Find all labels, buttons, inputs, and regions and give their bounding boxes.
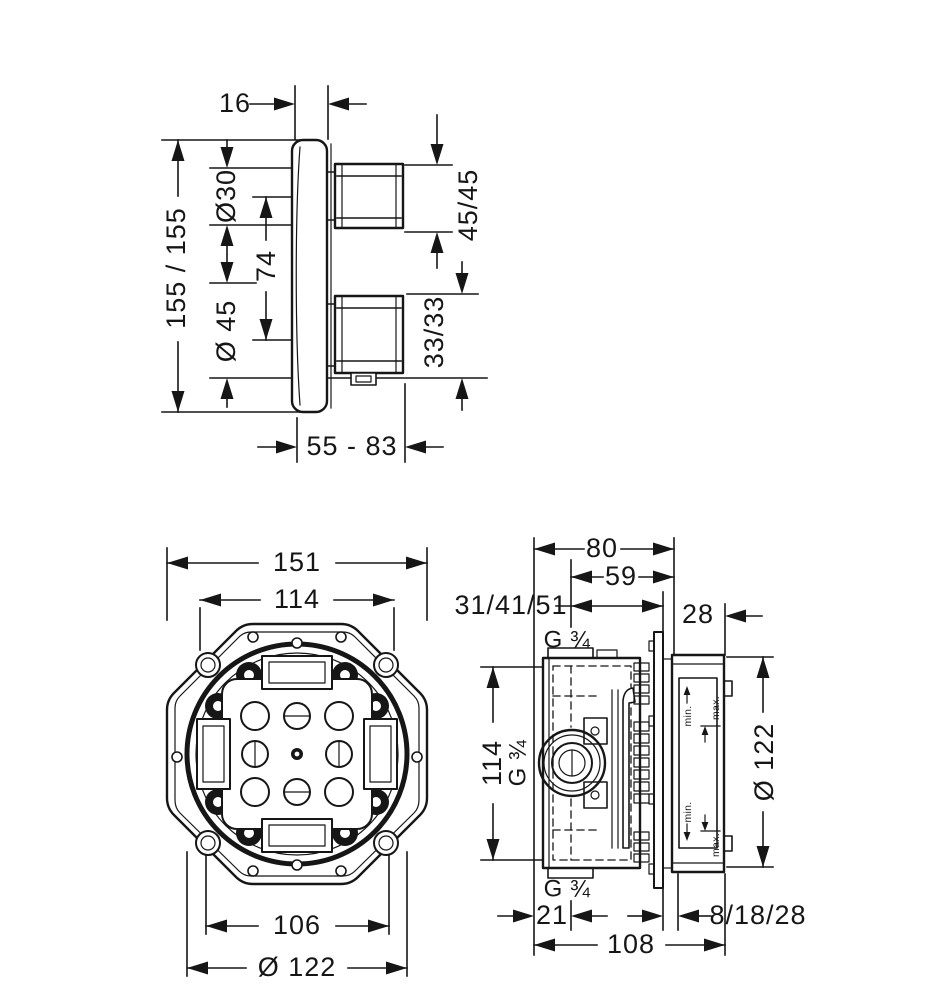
dim-offset-21: 21 [536,900,568,930]
dim-dia-45: Ø 45 [211,300,241,363]
dim-spacing-74: 74 [251,250,281,282]
handle-bottom-tab [351,373,376,385]
dim-handle-33: 33/33 [419,296,449,369]
dim-depth-80: 80 [586,533,618,563]
thread-label-top: G ¾ [544,627,591,654]
shutoff-handle [327,296,403,385]
escutcheon-plate [292,140,331,412]
shield-plate [654,632,663,888]
dim-overall-height: 155 / 155 [161,207,191,329]
basic-body [539,632,663,888]
technical-drawing-page: 16 155 / 155 Ø30 74 Ø 45 45/45 33/33 55 … [0,0,947,1000]
dim-dia-122-side: Ø 122 [749,723,779,802]
dim-width-108: 108 [607,929,655,959]
technical-drawing-canvas: 16 155 / 155 Ø30 74 Ø 45 45/45 33/33 55 … [0,0,947,1000]
ibox-front-view: 151 114 106 Ø 122 [167,547,427,982]
dim-depth-range: 55 - 83 [306,431,397,461]
dim-width-151: 151 [273,547,321,577]
min-label-top: min. [682,705,694,726]
dim-width-106: 106 [273,910,321,940]
min-label-bottom: min. [682,801,694,822]
thermostat-handle [327,164,403,228]
dim-height-114: 114 [477,740,507,786]
ibox-side-view: 80 59 31/41/51 28 G ¾ 114 G ¾ Ø 122 min.… [454,533,806,959]
dim-width-114: 114 [274,584,320,614]
dim-depth-28: 28 [682,599,714,629]
dim-wall-depths: 31/41/51 [454,590,567,620]
max-label-bottom: max. [710,833,722,857]
max-label-top: max. [710,696,722,720]
dim-dia-122-front: Ø 122 [258,952,337,982]
thread-label-mid: G ¾ [505,739,532,786]
dim-plaster-range: 8/18/28 [709,900,806,930]
dim-depth-59: 59 [605,561,637,591]
mounting-flange [167,624,427,884]
dim-plate-thickness: 16 [219,88,251,118]
dim-handle-45: 45/45 [453,169,483,242]
trim-side-view: 16 155 / 155 Ø30 74 Ø 45 45/45 33/33 55 … [161,86,487,462]
thread-label-bottom: G ¾ [544,876,591,903]
dim-dia-30: Ø30 [211,169,241,223]
